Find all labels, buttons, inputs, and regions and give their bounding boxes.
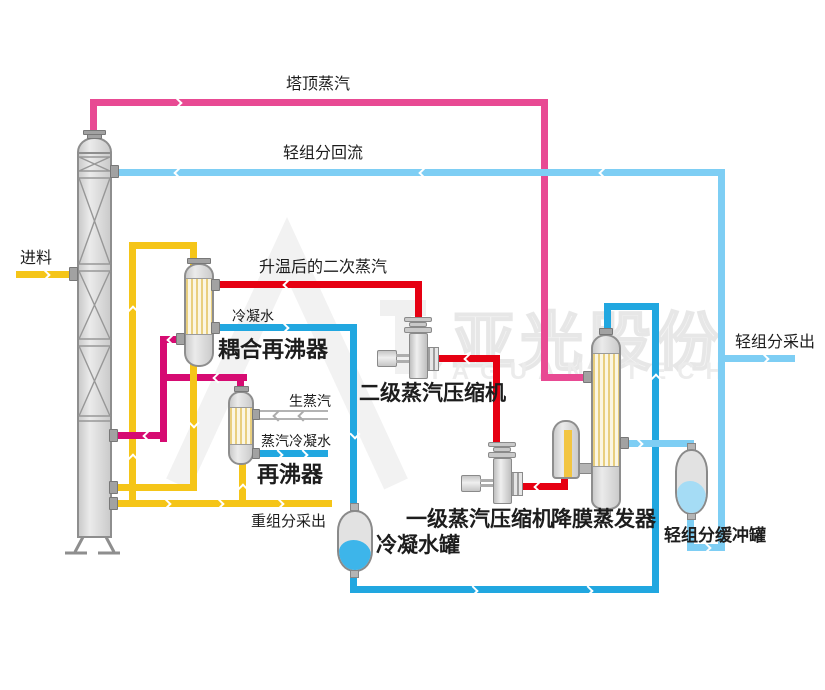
coupled-reboiler-top-flange	[187, 258, 211, 264]
pipe-light-component-draw	[718, 355, 795, 362]
evaporator-separator-connector	[578, 463, 592, 474]
process-flow-diagram: 亚光股份 YAGUANGTECH	[0, 0, 825, 690]
compressor2-motor	[377, 350, 397, 367]
pipe-return-to-column	[114, 484, 197, 491]
evaporator-distillate-nozzle	[620, 437, 629, 449]
compressor2-shaft-1	[396, 354, 409, 357]
label-heavy-component-draw: 重组分采出	[251, 514, 326, 531]
label-raw-steam: 生蒸汽	[289, 394, 331, 409]
compressor1-shaft-1	[480, 479, 493, 482]
label-tower-top-steam: 塔顶蒸汽	[286, 76, 350, 94]
label-light-component-buffer-tank: 轻组分缓冲罐	[664, 527, 766, 546]
column-bottoms-return-nozzle	[109, 481, 118, 494]
column-vapor-return-nozzle	[109, 429, 118, 442]
pipe-steam-condensate-from-reboiler	[256, 450, 328, 457]
pipe-condensate-down-to-tank	[350, 324, 357, 510]
pipe-tower-top-steam-vertical	[541, 99, 548, 381]
condensate-tank-vessel	[337, 510, 373, 572]
separator-vessel	[552, 420, 580, 479]
pipe-raw-steam	[256, 410, 328, 420]
compressor1-body	[493, 458, 512, 504]
compressor2-body	[409, 333, 428, 379]
label-falling-film-evaporator: 降膜蒸发器	[551, 508, 656, 531]
pipe-heated-secondary-steam	[214, 281, 422, 288]
column-bottoms-draw-nozzle	[109, 497, 118, 510]
label-reboiler: 再沸器	[257, 463, 323, 487]
label-secondary-steam-compressor: 二级蒸汽压缩机	[359, 382, 506, 405]
pipe-condensate-over-evaporator	[604, 303, 659, 310]
buffer-tank-liquid	[677, 481, 706, 513]
label-condensate-water: 冷凝水	[232, 309, 274, 324]
pipe-bottoms-riser	[129, 242, 136, 507]
label-steam-condensate: 蒸汽冷凝水	[261, 434, 331, 449]
pipe-condensate-bottom-horizontal	[350, 586, 659, 593]
column-reflux-nozzle	[110, 165, 119, 178]
compressor2-coupling-ribs	[427, 347, 439, 371]
coupled-reboiler-vessel	[184, 263, 214, 367]
evaporator-top-flange	[599, 328, 613, 335]
coupled-reboiler-condensate-nozzle	[211, 322, 220, 334]
distillation-column-body	[77, 152, 112, 538]
compressor2-shaft-2	[396, 360, 409, 363]
label-coupled-reboiler: 耦合再沸器	[218, 338, 328, 362]
reboiler-raw-steam-nozzle	[252, 409, 260, 420]
label-light-component-draw: 轻组分采出	[735, 334, 815, 352]
compressor1-shaft-2	[480, 484, 493, 487]
label-condensate-tank: 冷凝水罐	[376, 534, 460, 557]
condensate-tank-liquid	[339, 540, 371, 570]
condensate-tank-bottom-stub	[350, 570, 359, 578]
coupled-reboiler-steam-in-nozzle	[211, 279, 220, 291]
pipe-bottoms-riser-top	[129, 242, 197, 249]
pipe-condensate-riser-to-evaporator	[652, 303, 659, 593]
column-feed-nozzle	[69, 267, 78, 281]
pipe-vapor-return-to-column	[114, 432, 167, 439]
reboiler-top-flange	[234, 386, 249, 392]
reboiler-vessel	[228, 391, 254, 465]
pipe-tower-top-steam-horizontal	[90, 99, 548, 106]
evaporator-tubes	[593, 353, 619, 467]
separator-steam-stripe	[564, 430, 572, 479]
label-feed: 进料	[20, 250, 52, 268]
label-primary-steam-compressor: 一级蒸汽压缩机	[406, 508, 553, 531]
buffer-tank-bottom-stub	[687, 513, 696, 520]
buffer-tank-vessel	[675, 449, 708, 515]
pipe-vapor-return-from-reboiler	[160, 374, 247, 381]
compressor1-motor	[461, 475, 481, 492]
evaporator-steam-in-nozzle	[583, 371, 592, 383]
reboiler-tubes	[230, 407, 252, 445]
pipe-compressor2-discharge-vertical	[415, 281, 422, 321]
pipe-vapor-return-vertical	[160, 336, 167, 442]
coupled-reboiler-tubes	[186, 278, 212, 335]
compressor1-coupling-ribs	[511, 472, 523, 496]
label-heated-secondary-steam: 升温后的二次蒸汽	[259, 259, 387, 277]
reboiler-steam-condensate-nozzle	[252, 448, 260, 459]
label-light-component-reflux: 轻组分回流	[283, 145, 363, 163]
column-top-neck	[87, 134, 102, 139]
evaporator-vessel	[591, 334, 621, 510]
